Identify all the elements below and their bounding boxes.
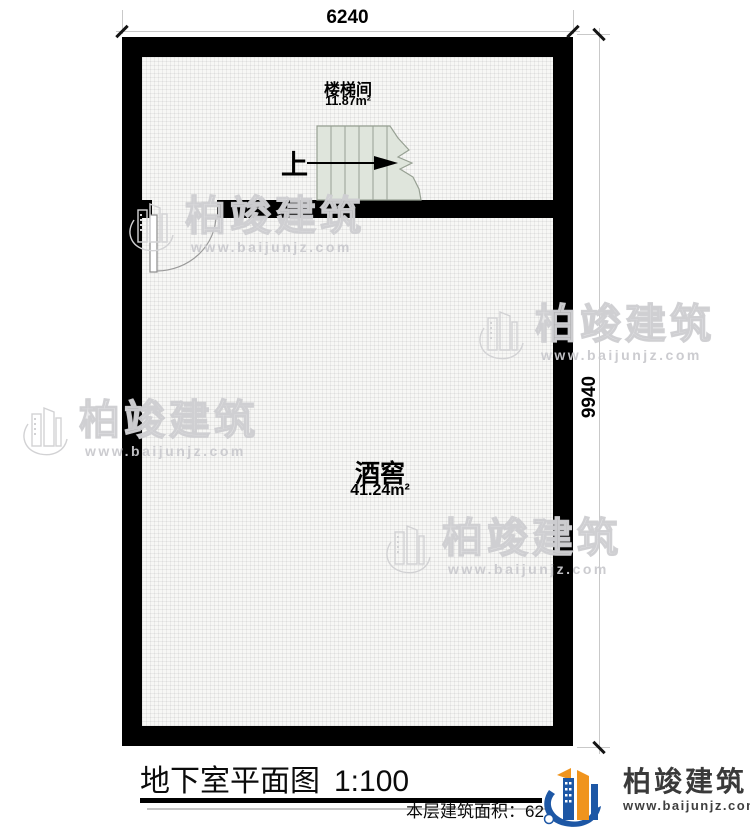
stairs-up-label: 上 [281,143,308,182]
right-extension-line-bottom [577,747,610,748]
right-extension-line-top [577,34,610,35]
logo-url-text: www.baijunjz.com [623,798,750,813]
wine-cellar-area: 41.24m² [320,482,440,500]
drawing-title-text: 地下室平面图 [140,765,320,798]
top-dimension-line [116,31,580,32]
interior-wall-stub [142,200,152,218]
company-logo: 柏竣建筑 www.baijunjz.com [537,766,750,830]
floor-area-note: 本层建筑面积：62. [406,797,549,822]
interior-wall [217,200,553,218]
top-dimension-value: 6240 [122,7,573,29]
logo-building-icon [537,766,617,830]
drawing-title: 地下室平面图1:100 [140,756,409,800]
drawing-scale: 1:100 [334,765,409,798]
floor-area [142,57,553,726]
watermark-building-icon [20,402,72,458]
stairwell-area: 11.87m² [288,94,408,108]
right-dimension-value: 9940 [570,375,610,419]
logo-brand-text: 柏竣建筑 [623,766,750,798]
